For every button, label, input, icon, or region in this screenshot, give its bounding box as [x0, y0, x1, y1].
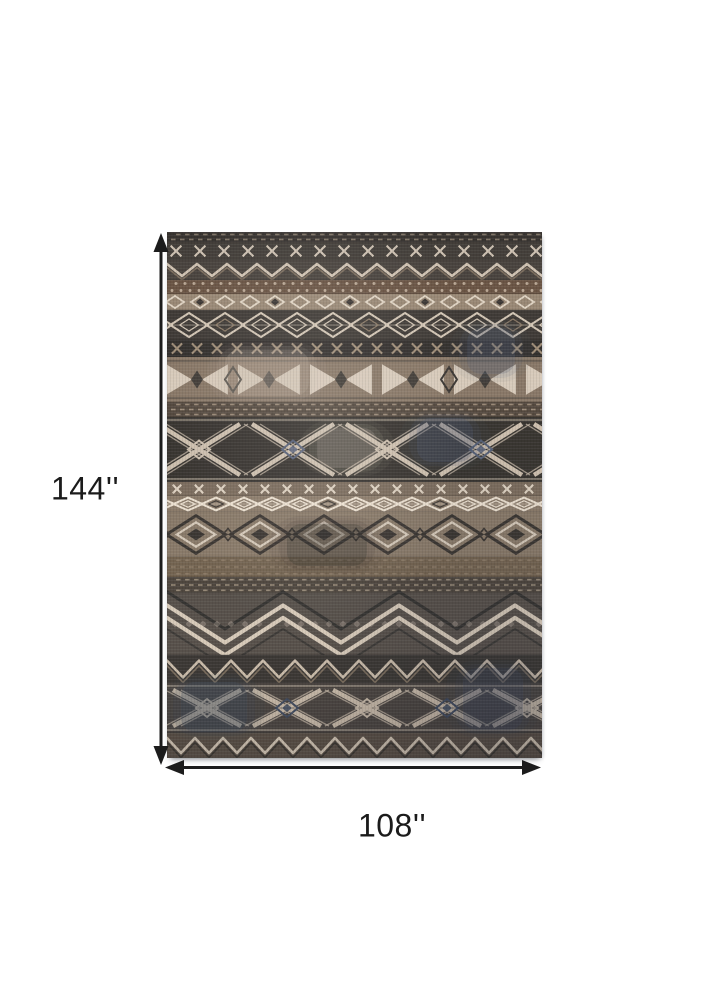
width-arrow-head-left	[165, 760, 184, 775]
height-dimension-label: 144''	[51, 471, 119, 508]
rug-pattern-image	[167, 232, 542, 758]
width-dimension-label: 108''	[358, 808, 426, 845]
rug-photo	[167, 232, 542, 758]
product-dimension-diagram: 144'' 108''	[0, 0, 708, 1000]
width-arrow	[165, 760, 541, 775]
width-arrow-head-right	[522, 760, 541, 775]
